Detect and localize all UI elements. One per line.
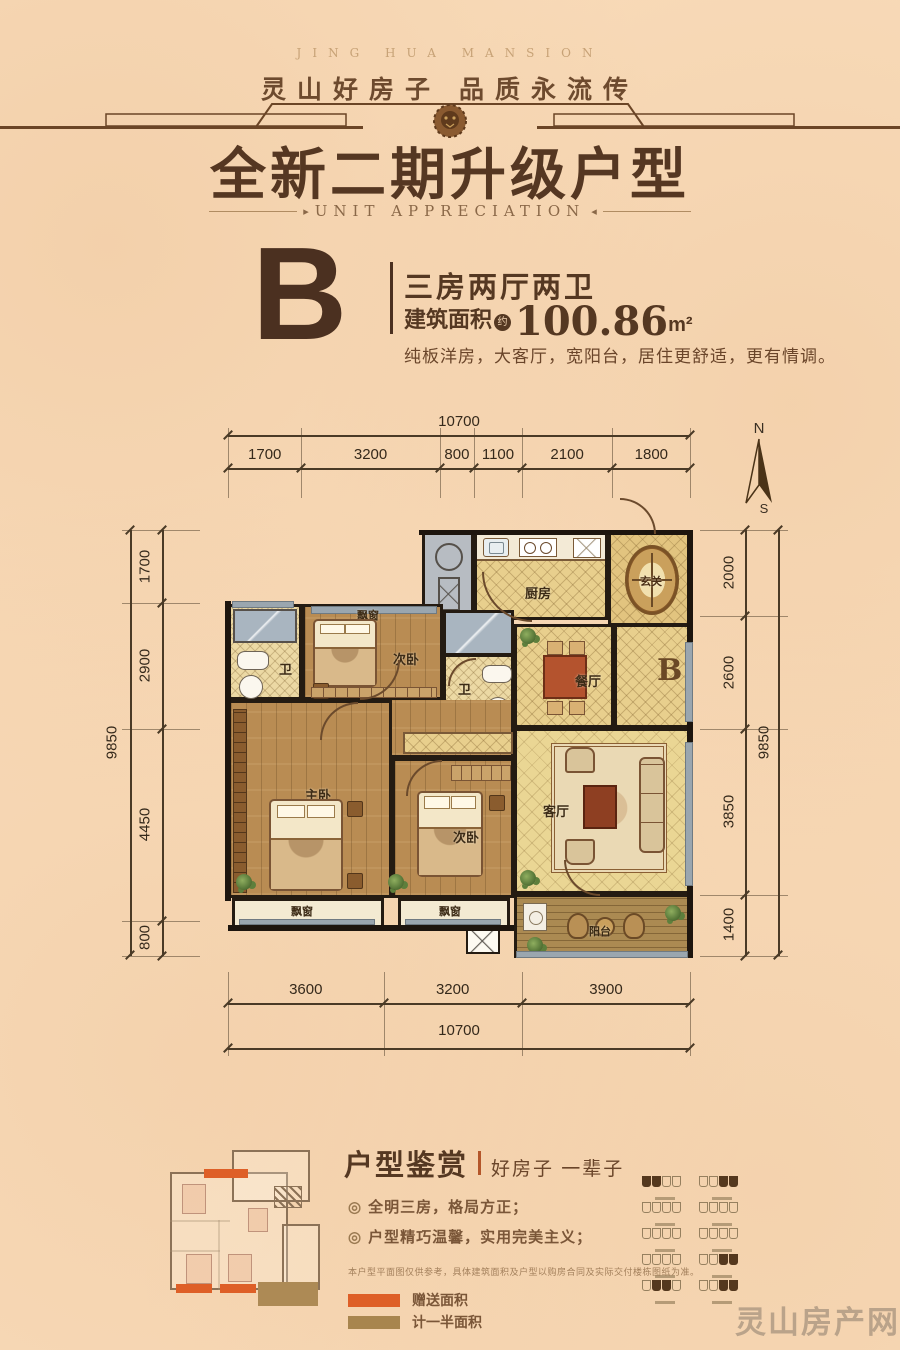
thumb-gift-area — [176, 1284, 212, 1293]
dim-label: 800 — [440, 446, 475, 463]
room-b-bay: B — [614, 624, 690, 728]
living-label: 客厅 — [543, 801, 569, 820]
coffee-table — [583, 785, 617, 829]
bullet-icon: ◎ — [348, 1199, 362, 1216]
dim-ext — [700, 530, 788, 531]
dim-right-total-line — [778, 530, 780, 956]
dim-label: 1400 — [721, 895, 738, 955]
dim-top-total-line — [228, 435, 690, 437]
legend-label-gift: 赠送面积 — [412, 1290, 468, 1310]
dim-label: 10700 — [228, 1022, 690, 1039]
key-plan-caption — [712, 1223, 732, 1226]
dim-label: 9850 — [756, 713, 773, 773]
dim-bottom-total-line — [228, 1048, 690, 1050]
area-unit: m² — [668, 314, 692, 336]
arrow-left-icon: ◂ — [591, 205, 597, 218]
thumb-gift-area — [220, 1284, 256, 1293]
dim-left-seg-line — [162, 530, 164, 956]
window-bath-a-top — [232, 601, 294, 608]
balcony-label: 阳台 — [589, 923, 611, 939]
dim-ext — [122, 729, 200, 730]
window-right-living — [685, 742, 693, 886]
key-plan — [699, 1202, 745, 1226]
toilet-icon — [482, 665, 512, 683]
key-plan-caption — [655, 1249, 675, 1252]
dim-ext — [122, 530, 200, 531]
appreciation-heading: 户型鉴赏 好房子 一辈子 — [344, 1142, 624, 1184]
key-plan — [699, 1176, 745, 1200]
area-value: 100.86 — [515, 298, 668, 345]
heading-main: 户型鉴赏 — [344, 1142, 468, 1184]
key-plan — [642, 1280, 688, 1304]
compass: N S — [728, 415, 790, 515]
fridge-icon — [573, 538, 601, 558]
dining-chair — [547, 701, 563, 715]
key-plan-caption — [712, 1301, 732, 1304]
thumb-elevator-hatch — [274, 1186, 302, 1208]
legend-label-half: 计一半面积 — [412, 1312, 482, 1332]
dim-label: 2900 — [137, 636, 154, 696]
room-living: 客厅 — [514, 728, 690, 894]
key-plan-caption — [655, 1197, 675, 1200]
bath-a-label: 卫 — [279, 659, 292, 678]
dim-label: 1700 — [137, 536, 154, 596]
bullet-icon: ◎ — [348, 1229, 362, 1246]
dim-ext — [122, 956, 200, 957]
heading-separator — [478, 1151, 481, 1175]
plant-icon — [520, 628, 536, 644]
sink-icon — [483, 538, 509, 557]
patio-chair — [623, 913, 645, 939]
dim-ext — [122, 603, 200, 604]
window-right-dining — [685, 642, 693, 722]
dim-ext — [700, 616, 788, 617]
stove-icon — [519, 538, 557, 557]
plant-icon — [665, 905, 681, 921]
dim-ext — [301, 428, 302, 498]
plant-icon — [388, 874, 404, 890]
bedroom-b-label: 次卧 — [453, 827, 479, 846]
floor-plan: 厨房 玄关 餐厅 B 客厅 — [228, 530, 690, 962]
key-plan-caption — [655, 1223, 675, 1226]
dining-chair — [569, 701, 585, 715]
plan-unit-mark: B — [657, 653, 682, 688]
page-title: 全新二期升级户型 — [0, 130, 900, 211]
bed-graphic — [269, 799, 343, 891]
dining-chair — [547, 641, 563, 655]
dim-label: 3600 — [228, 981, 384, 998]
subtitle-line-left — [209, 211, 297, 212]
dim-ext — [700, 956, 788, 957]
unit-divider — [390, 262, 393, 334]
dim-label: 9850 — [104, 713, 121, 773]
dim-label: 2100 — [522, 446, 613, 463]
entry-label: 玄关 — [640, 573, 662, 589]
dim-ext — [700, 895, 788, 896]
dim-ext — [384, 972, 385, 1056]
dim-ext — [122, 921, 200, 922]
heading-sub: 好房子 一辈子 — [491, 1154, 624, 1181]
key-plan — [699, 1228, 745, 1252]
thumb-gift-area — [204, 1169, 248, 1178]
washer-icon — [523, 903, 547, 931]
dim-ext — [522, 972, 523, 1056]
armchair — [565, 747, 595, 773]
thumb-half-area — [258, 1282, 318, 1306]
compass-north-label: N — [754, 420, 765, 437]
plant-icon — [236, 874, 252, 890]
entry-door-arc — [620, 498, 656, 534]
subtitle-row: ▸ UNIT APPRECIATION ◂ — [0, 202, 900, 220]
dim-ext — [440, 428, 441, 498]
dim-label: 2600 — [721, 642, 738, 702]
unit-area-row: 建筑面积约100.86m² — [404, 298, 693, 345]
nightstand — [347, 801, 363, 817]
disclaimer-text: 本户型平面图仅供参考，具体建筑面积及户型以购房合同及实际交付楼栋图纸为准。 — [348, 1265, 700, 1278]
key-plan — [699, 1254, 745, 1278]
compass-south-label: S — [760, 501, 769, 515]
dim-label: 1800 — [612, 446, 690, 463]
bay-master: 飘窗 — [232, 898, 384, 928]
key-plan — [642, 1228, 688, 1252]
dim-label: 1700 — [228, 446, 301, 463]
brand-name-en: JING HUA MANSION — [0, 46, 900, 60]
dim-ext — [690, 428, 691, 498]
shower-area — [233, 609, 297, 643]
bay-master-label: 飘窗 — [291, 903, 313, 919]
sofa-long — [639, 757, 665, 853]
dim-ext — [700, 729, 788, 730]
bay-b-label: 飘窗 — [439, 903, 461, 919]
dining-chair — [569, 641, 585, 655]
site-watermark: 灵山房产网 — [735, 1297, 900, 1342]
arrow-right-icon: ▸ — [303, 205, 309, 218]
dining-label: 餐厅 — [575, 671, 601, 690]
room-bath-a: 卫 — [228, 604, 302, 700]
wardrobe — [451, 765, 511, 781]
thumbnail-plan — [162, 1142, 327, 1314]
shower-area-b — [443, 610, 514, 656]
hall-runner — [403, 732, 513, 754]
legend-swatch-half — [348, 1316, 400, 1329]
dim-ext — [612, 428, 613, 498]
balcony-railing — [516, 951, 688, 958]
dim-left-total-line — [130, 530, 132, 956]
dim-label: 3200 — [384, 981, 522, 998]
dim-label: 3900 — [522, 981, 690, 998]
wash-basin-icon — [239, 675, 263, 699]
room-master: 主卧 — [228, 700, 392, 898]
room-entry: 玄关 — [608, 532, 690, 626]
unit-letter: B — [252, 228, 347, 360]
dim-right-seg-line — [745, 530, 747, 956]
kitchen-counter — [477, 535, 605, 561]
bookshelf — [233, 709, 247, 893]
key-plan-caption — [712, 1275, 732, 1278]
bullet-item: ◎全明三房，格局方正； — [348, 1196, 528, 1217]
toilet-icon — [237, 651, 269, 670]
patio-chair — [567, 913, 589, 939]
dim-label: 1100 — [474, 446, 522, 463]
key-plan-caption — [655, 1301, 675, 1304]
ac-platform — [466, 928, 500, 954]
dim-ext — [228, 428, 229, 498]
nightstand — [489, 795, 505, 811]
room-balcony: 阳台 — [514, 894, 690, 958]
legend-gift: 赠送面积 — [348, 1290, 468, 1310]
dim-ext — [228, 972, 229, 1056]
dim-bottom-seg-line — [228, 1003, 690, 1005]
dim-label: 10700 — [228, 413, 690, 430]
dim-ext — [690, 972, 691, 1056]
dim-label: 800 — [137, 908, 154, 968]
key-plan-caption — [712, 1249, 732, 1252]
legend-swatch-gift — [348, 1294, 400, 1307]
subtitle-line-right — [603, 211, 691, 212]
poster-page: JING HUA MANSION 灵山好房子 品质永流传 全新二期升级户型 ▸ … — [0, 0, 900, 1350]
dim-label: 2000 — [721, 543, 738, 603]
key-plan-caption — [712, 1197, 732, 1200]
subtitle-text: UNIT APPRECIATION — [315, 202, 586, 220]
key-plan — [642, 1176, 688, 1200]
dim-label: 3200 — [301, 446, 439, 463]
dim-ext — [474, 428, 475, 498]
nightstand — [347, 873, 363, 889]
bay-bedroom-b: 飘窗 — [398, 898, 510, 928]
key-plan — [642, 1202, 688, 1226]
dim-label: 4450 — [137, 794, 154, 854]
unit-description: 纯板洋房，大客厅，宽阳台，居住更舒适，更有情调。 — [404, 342, 836, 367]
dim-top-seg-line — [228, 468, 690, 470]
bullet-item: ◎户型精巧温馨，实用完美主义； — [348, 1226, 592, 1247]
approx-badge: 约 — [494, 314, 511, 331]
plant-icon — [520, 870, 536, 886]
area-label: 建筑面积 — [404, 307, 492, 332]
legend-half: 计一半面积 — [348, 1312, 482, 1332]
elevator-icon — [435, 543, 463, 571]
dim-ext — [522, 428, 523, 498]
dim-label: 3850 — [721, 781, 738, 841]
